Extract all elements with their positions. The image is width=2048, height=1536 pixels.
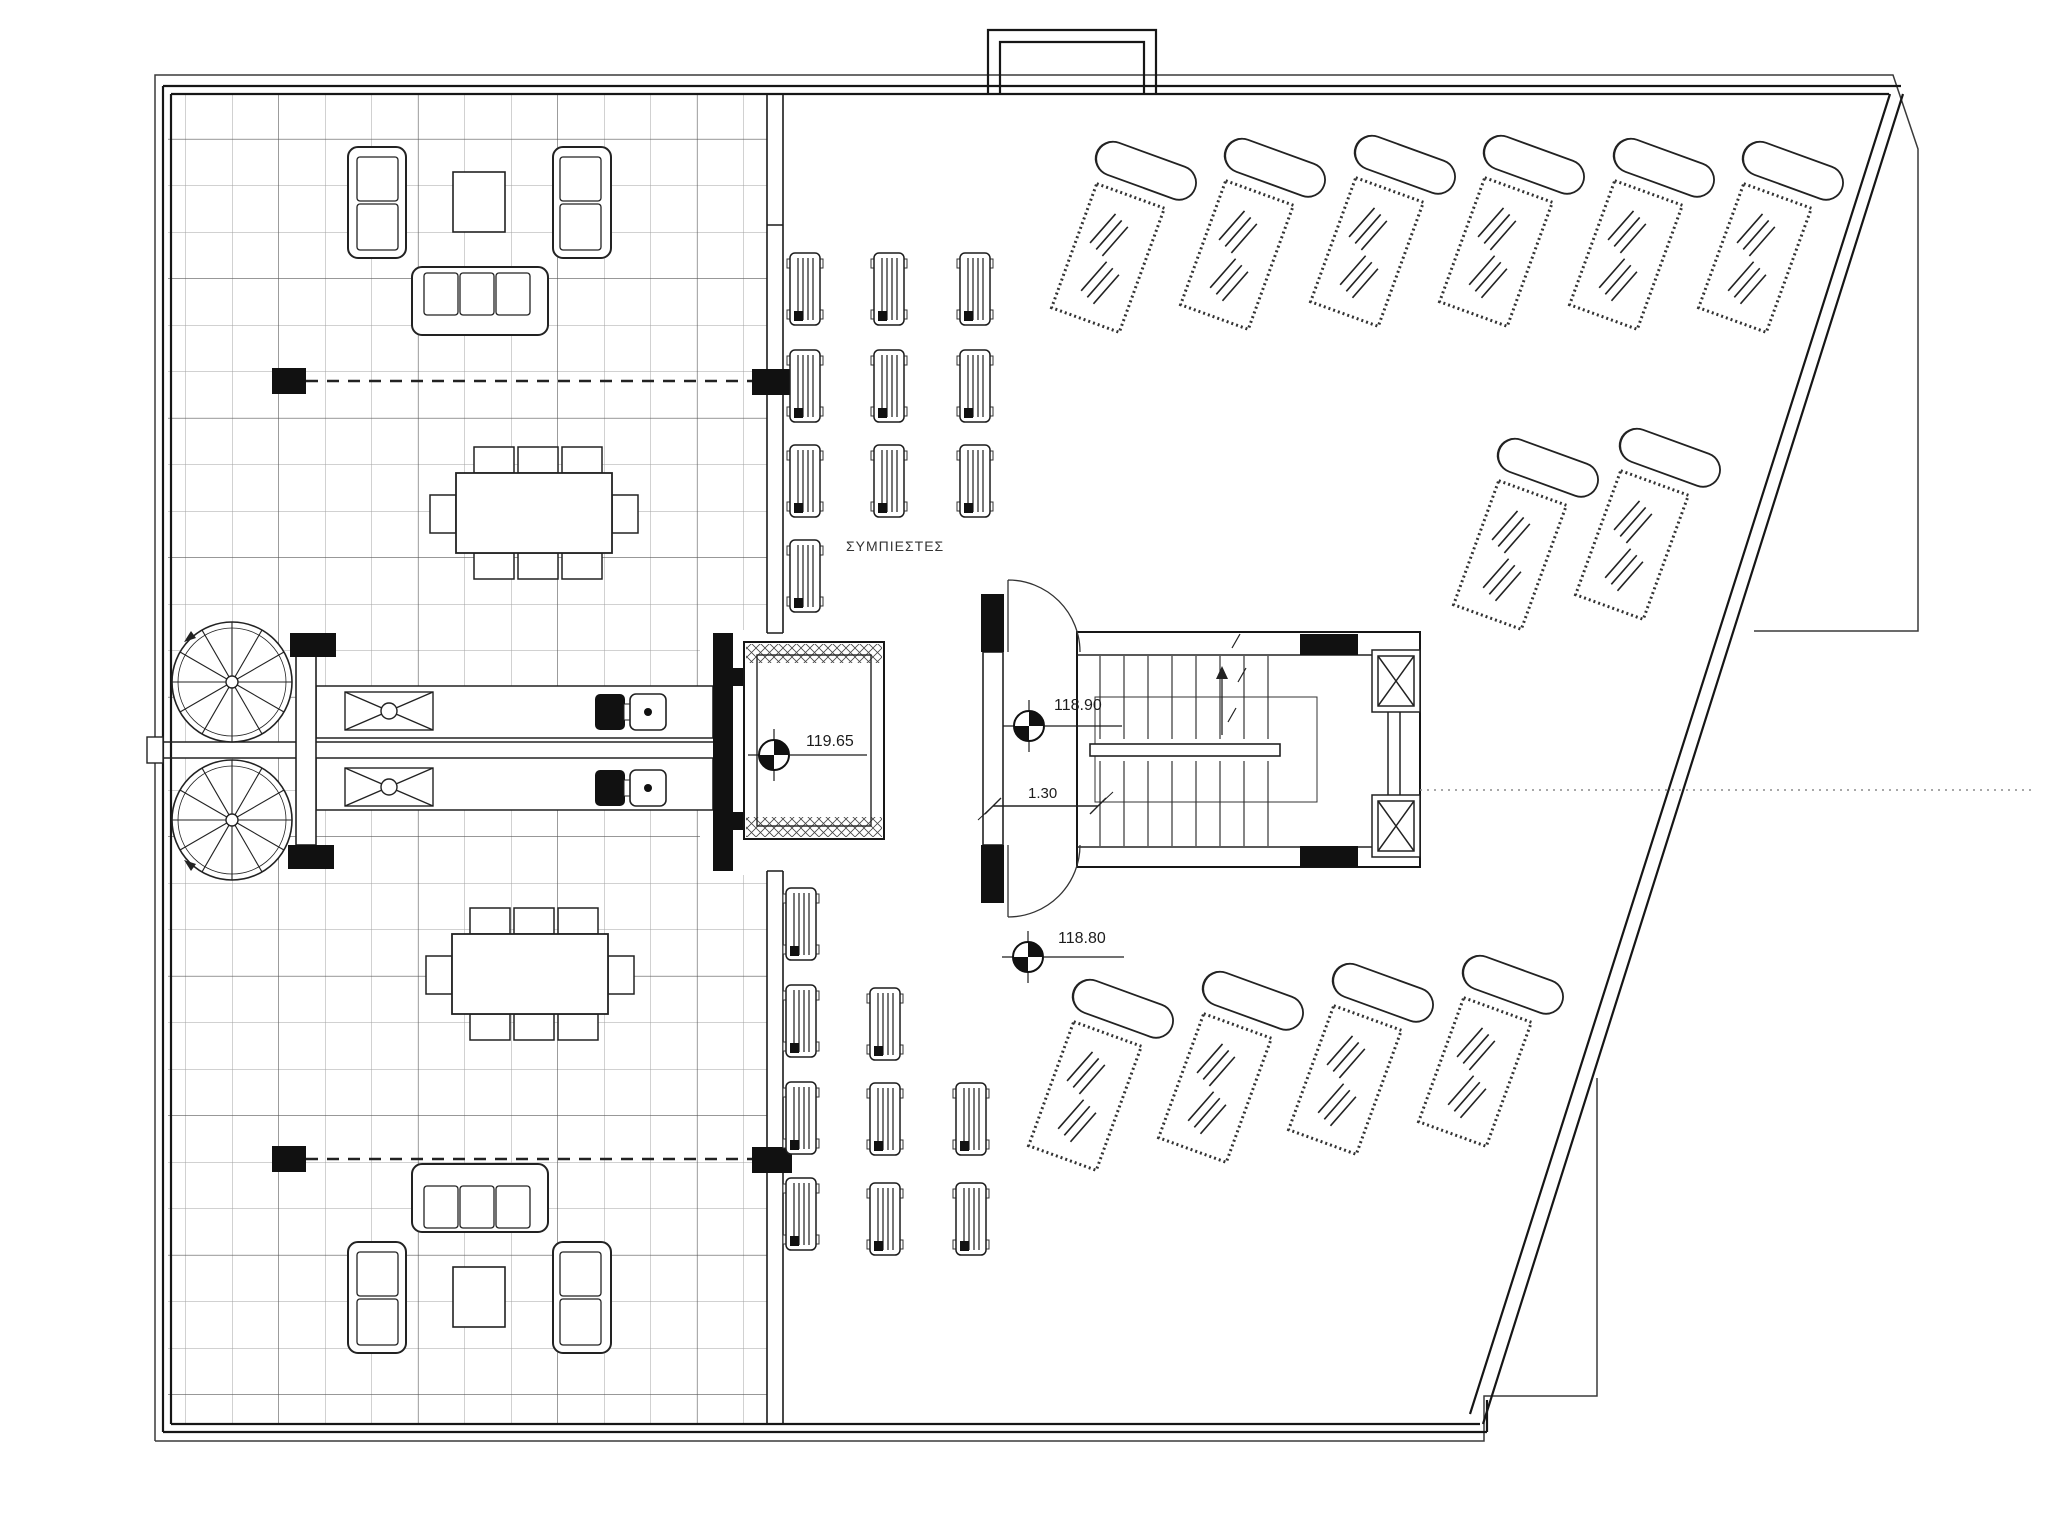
- level-annotation-118-80: 118.80: [1058, 930, 1106, 948]
- level-annotation-119-65: 119.65: [806, 733, 854, 751]
- compressor-unit: [787, 445, 823, 517]
- slanted-edge: [1470, 94, 1903, 1424]
- compressor-unit: [867, 988, 903, 1060]
- sun-lounger: [1018, 975, 1178, 1178]
- sun-lounger: [1559, 134, 1719, 337]
- compressor-unit: [787, 350, 823, 422]
- compressor-unit: [783, 1082, 819, 1154]
- sun-lounger: [1170, 134, 1330, 337]
- level-annotation-118-90: 118.90: [1054, 697, 1102, 715]
- roof-parapet-bump: [988, 30, 1156, 94]
- stair-entrance: [981, 580, 1080, 917]
- compressor-unit: [783, 888, 819, 960]
- compressor-unit: [953, 1183, 989, 1255]
- compressor-unit: [953, 1083, 989, 1155]
- compressor-unit: [787, 253, 823, 325]
- sun-lounger: [1429, 131, 1589, 334]
- compressor-unit: [871, 445, 907, 517]
- sun-lounger: [1041, 137, 1201, 340]
- plan-linework: [0, 0, 2048, 1536]
- compressor-unit: [867, 1083, 903, 1155]
- dining-table: [456, 473, 612, 553]
- compressor-unit: [871, 350, 907, 422]
- compressor-unit: [783, 1178, 819, 1250]
- left-edge-nub: [147, 737, 163, 763]
- dining-table: [452, 934, 608, 1014]
- coffee-table: [453, 172, 505, 232]
- sun-lounger: [1300, 131, 1460, 334]
- coffee-table: [453, 1267, 505, 1327]
- architectural-drawing: ΣΥΜΠΙΕΣΤΕΣ 119.65 118.90 118.80 1.30: [0, 0, 2048, 1536]
- compressor-unit: [783, 985, 819, 1057]
- stair-width-dimension: 1.30: [1028, 785, 1057, 802]
- door-swing-lower: [1008, 845, 1080, 917]
- sun-lounger: [1565, 424, 1725, 627]
- stair-handrail: [1090, 744, 1280, 756]
- sun-lounger: [1278, 959, 1438, 1162]
- sun-lounger: [1148, 967, 1308, 1170]
- main-stair-block: [1077, 632, 1420, 867]
- compressor-unit: [957, 253, 993, 325]
- sun-lounger: [1408, 951, 1568, 1154]
- compressor-unit: [957, 350, 993, 422]
- sun-lounger: [1688, 137, 1848, 340]
- compressor-unit: [787, 540, 823, 612]
- compressor-unit: [867, 1183, 903, 1255]
- door-swing-upper: [1008, 580, 1080, 652]
- compressors-label: ΣΥΜΠΙΕΣΤΕΣ: [846, 538, 944, 554]
- compressor-unit: [957, 445, 993, 517]
- sun-lounger: [1443, 434, 1603, 637]
- compressor-unit: [871, 253, 907, 325]
